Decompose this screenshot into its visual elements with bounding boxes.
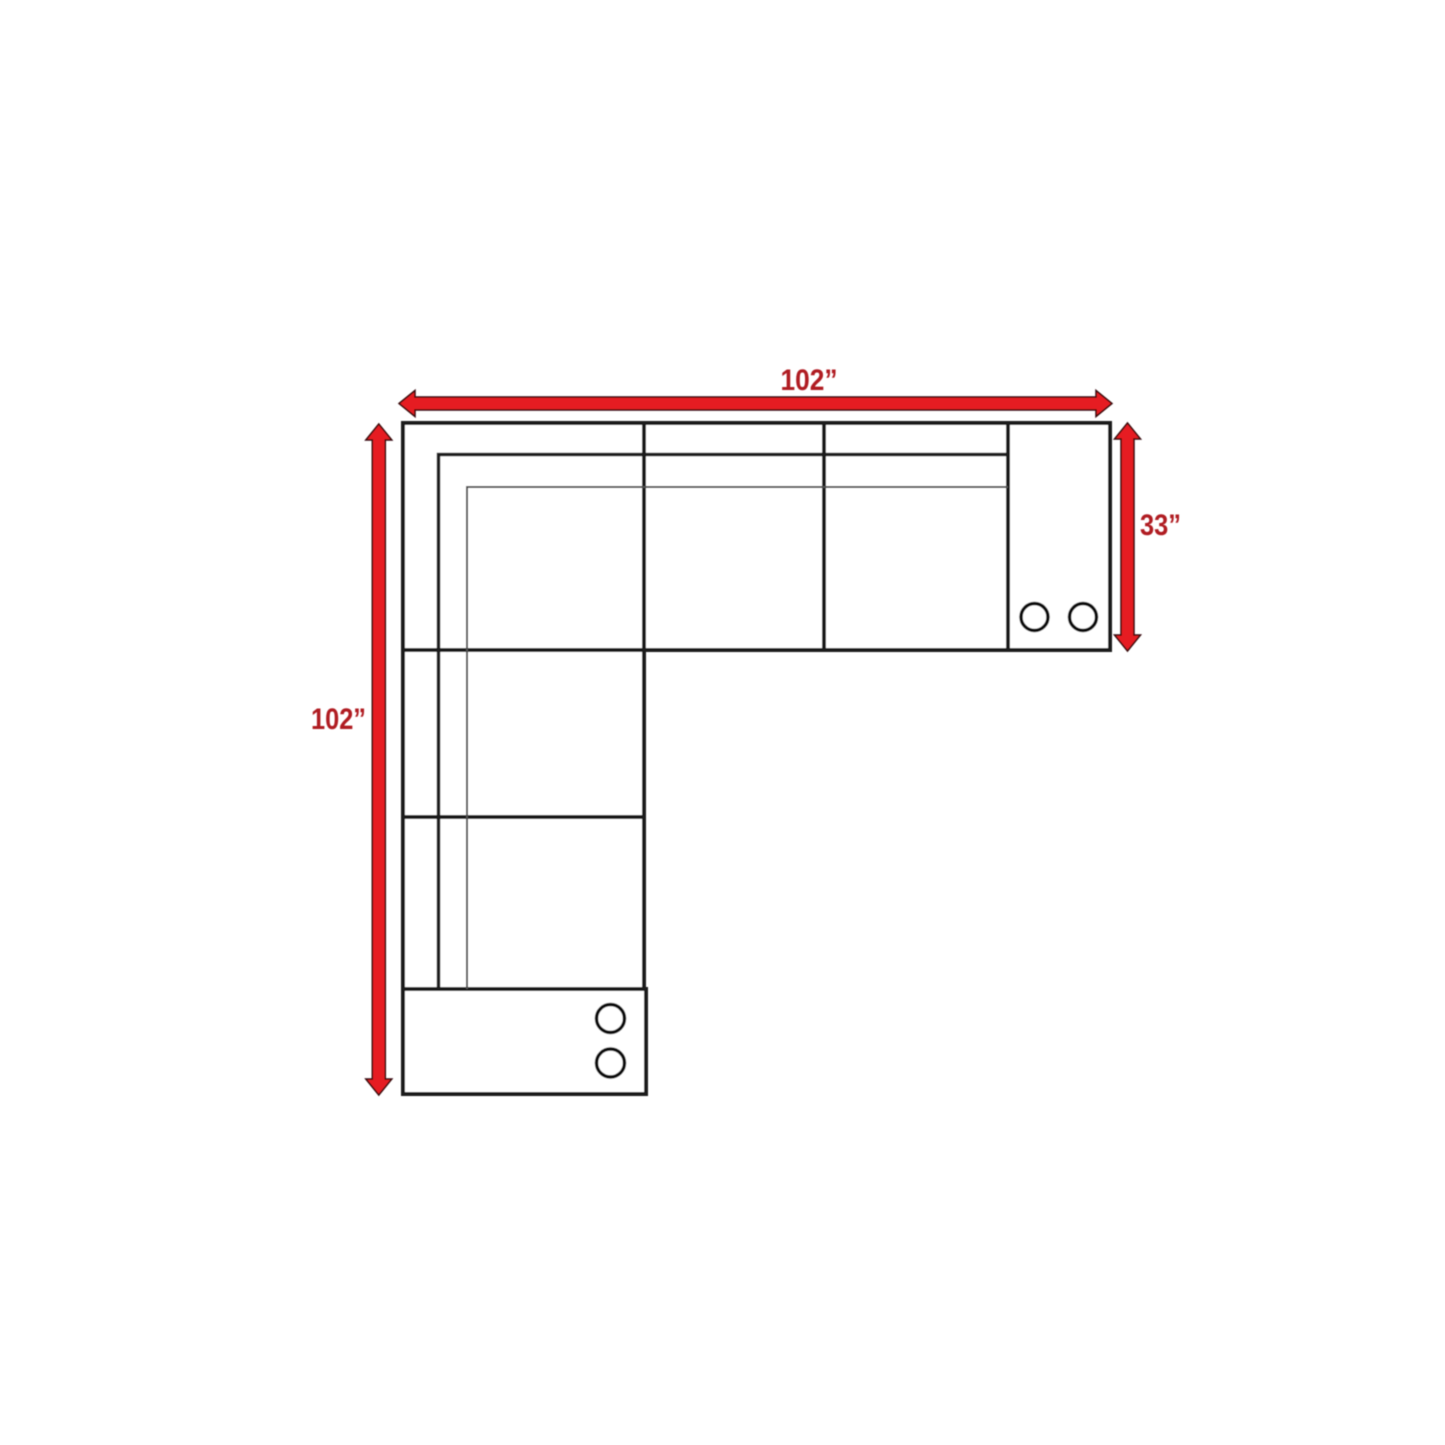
svg-text:102”: 102”	[781, 364, 838, 397]
svg-text:33”: 33”	[1140, 509, 1181, 542]
svg-text:102”: 102”	[311, 703, 366, 736]
